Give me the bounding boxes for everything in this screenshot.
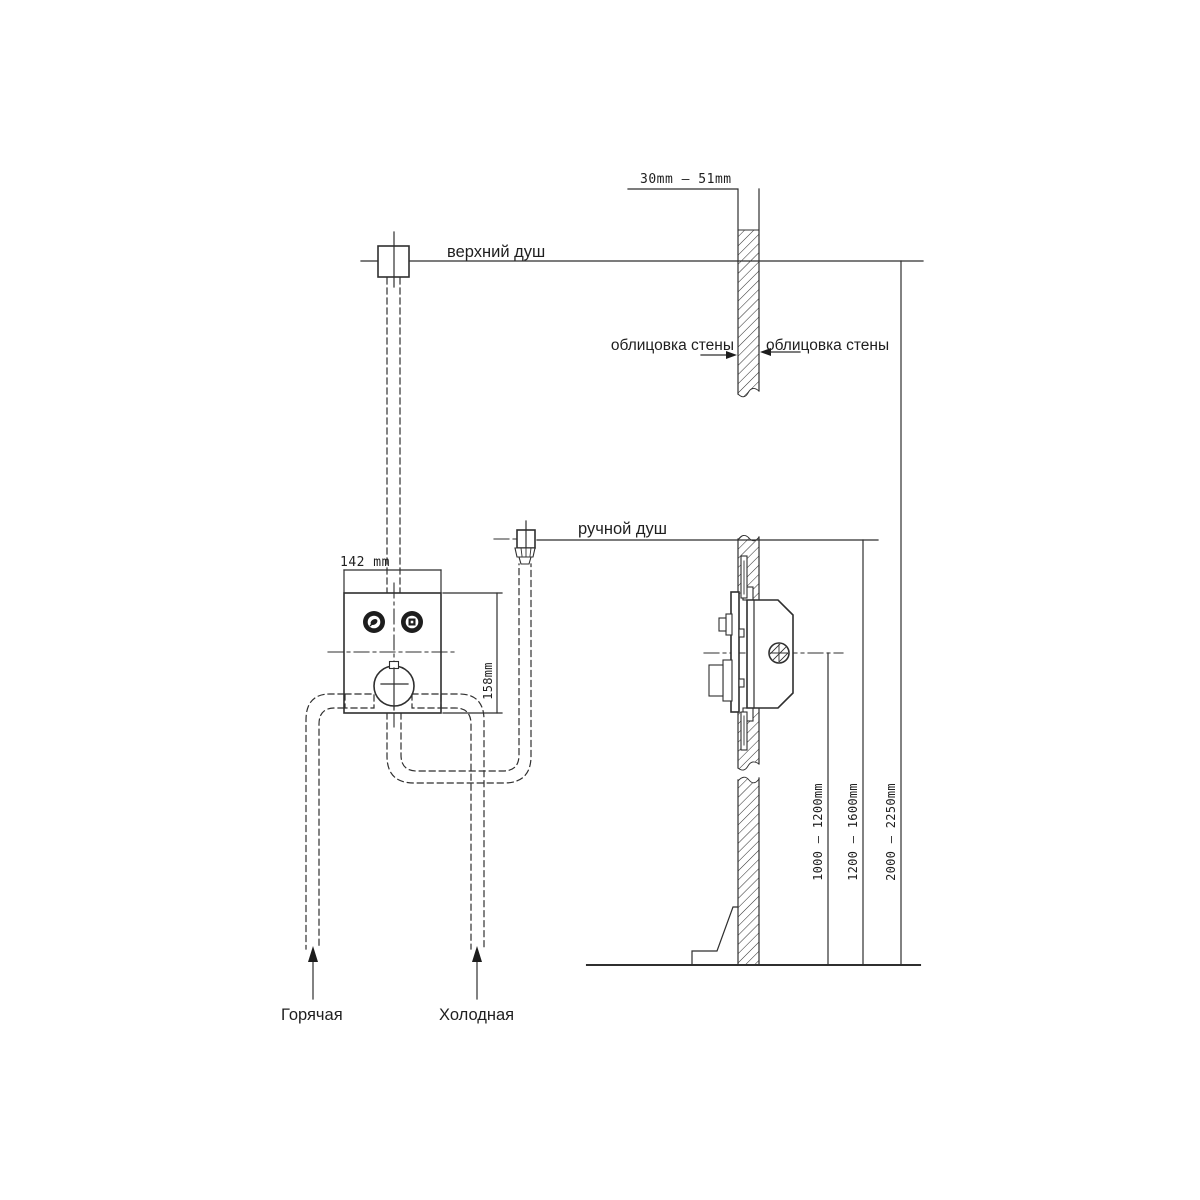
wall-hatch-top	[738, 230, 759, 397]
handle-base-side	[723, 660, 732, 701]
hand-shower-height-value: 1200 – 1600mm	[846, 783, 860, 881]
wall-cladding-label-left: облицовка стены	[611, 337, 734, 354]
cold-supply-arrow-icon	[472, 946, 482, 962]
valve-axis-height-value: 1000 – 1200mm	[811, 783, 825, 881]
diverter-button-handshower	[401, 611, 423, 633]
hot-pipe-outer	[306, 694, 344, 949]
valve-width-value: 142 mm	[340, 555, 390, 570]
diverter-button-side	[726, 614, 732, 635]
installation-diagram-page: 30mm – 51mm облицовка стены облицовка ст…	[0, 0, 1200, 1200]
height-dimensions: 1000 – 1200mm 1200 – 1600mm 2000 – 2250m…	[811, 261, 901, 964]
width-dimension: 142 mm	[340, 555, 441, 592]
flange-detail-top	[739, 629, 744, 637]
hand-shower-nut	[515, 548, 535, 557]
hand-shower-glyph-center	[411, 621, 414, 624]
cold-pipe-inner	[441, 708, 471, 949]
hot-pipe-inner	[319, 708, 344, 949]
overhead-shower-label: верхний душ	[447, 243, 545, 261]
hand-shower-outlet: ручной душ	[494, 520, 667, 564]
wall-thickness-value: 30mm – 51mm	[640, 172, 732, 187]
floor-step-profile	[692, 907, 738, 964]
hand-shower-label: ручной душ	[578, 520, 667, 538]
overhead-shower-height-value: 2000 – 2250mm	[884, 783, 898, 881]
wall-hatch-bottom	[738, 777, 759, 964]
installation-diagram: 30mm – 51mm облицовка стены облицовка ст…	[0, 0, 1200, 1200]
hand-shower-nipple	[519, 557, 531, 564]
mixer-front-view	[328, 583, 456, 727]
flange-detail-bottom	[739, 679, 744, 687]
handle-knob-side	[709, 665, 723, 696]
diverter-button-cap-side	[719, 618, 726, 631]
wall-section	[692, 189, 759, 964]
overhead-shower-outlet: верхний душ	[378, 232, 545, 287]
diverter-button-overhead	[363, 611, 385, 633]
hot-water-label: Горячая	[281, 1006, 343, 1024]
cold-pipe-outer	[441, 694, 484, 949]
wall-thickness-dimension: 30mm – 51mm	[628, 172, 737, 189]
reference-lines	[361, 261, 923, 965]
cold-water-label: Холодная	[439, 1006, 514, 1024]
valve-height-dimension: 158mm	[443, 593, 502, 713]
valve-height-value: 158mm	[481, 662, 495, 700]
hot-supply-arrow-icon	[308, 946, 318, 962]
